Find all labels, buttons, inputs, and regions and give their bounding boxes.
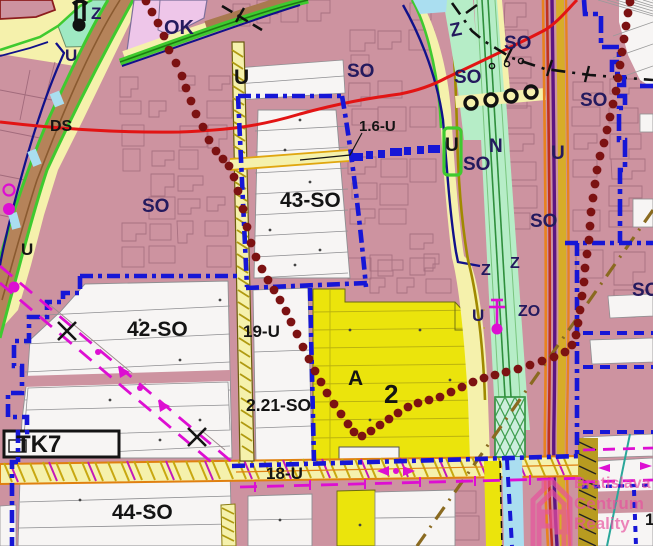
svg-text:SO: SO (580, 90, 607, 111)
svg-text:DS: DS (50, 118, 73, 135)
svg-text:OK: OK (164, 17, 195, 39)
svg-text:SO: SO (454, 67, 481, 88)
svg-text:2: 2 (384, 379, 398, 409)
svg-text:U: U (65, 46, 77, 65)
svg-text:N: N (489, 136, 503, 157)
svg-text:U: U (445, 135, 459, 156)
svg-text:42-SO: 42-SO (127, 318, 188, 341)
svg-text:U: U (234, 66, 249, 89)
svg-text:TK7: TK7 (16, 431, 61, 458)
svg-text:Bratislava: Bratislava (574, 475, 651, 492)
svg-text:1.6-U: 1.6-U (359, 118, 396, 135)
svg-text:43-SO: 43-SO (280, 189, 341, 212)
svg-text:SO: SO (632, 280, 653, 301)
svg-text:A: A (348, 367, 363, 390)
svg-text:1: 1 (645, 510, 653, 529)
svg-text:U: U (551, 143, 565, 164)
svg-text:19-U: 19-U (243, 322, 280, 341)
svg-text:SO: SO (463, 154, 490, 175)
svg-text:Z: Z (510, 255, 520, 272)
svg-text:SO: SO (504, 33, 531, 54)
svg-text:ZO: ZO (518, 303, 540, 320)
svg-text:U: U (21, 240, 33, 259)
svg-text:SO: SO (530, 211, 557, 232)
svg-text:SO: SO (142, 196, 169, 217)
svg-text:U: U (472, 306, 484, 325)
svg-text:Z: Z (481, 262, 491, 279)
svg-text:18-U: 18-U (266, 464, 303, 483)
svg-text:Z: Z (91, 4, 101, 23)
svg-text:Reality: Reality (574, 514, 630, 533)
svg-text:2.21-SO: 2.21-SO (246, 395, 311, 415)
svg-text:Centrum: Centrum (574, 494, 644, 513)
svg-text:SO: SO (347, 61, 374, 82)
svg-text:44-SO: 44-SO (112, 501, 173, 524)
